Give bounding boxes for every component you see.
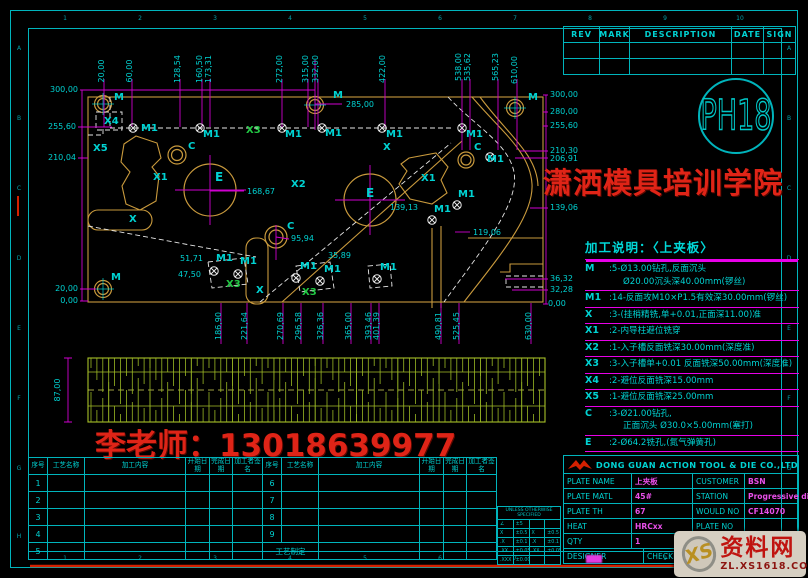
note-line: :5-Ø13.00钻孔,反面沉头 (609, 263, 799, 276)
process-empty-cell (466, 474, 497, 492)
feature-label: X (129, 214, 137, 225)
tolerance-cell: ±0.05 (514, 547, 530, 555)
dim-label: 139,13 (390, 203, 418, 212)
dim-label: 139,06 (550, 203, 578, 212)
feature-label: X1 (421, 173, 436, 184)
dim-label: 565,23 (491, 53, 500, 81)
feature-label: X3 (246, 125, 261, 136)
process-empty-cell (47, 525, 85, 543)
note-line: :1-入子槽反面铣深30.00mm(深度准) (609, 342, 799, 355)
feature-label: X (256, 285, 264, 296)
zone-letter: A (17, 45, 22, 52)
process-empty-cell (185, 474, 210, 492)
process-empty-cell (443, 525, 467, 543)
zone-number: 8 (588, 15, 592, 22)
title-block-header: DONG GUAN ACTION TOOL & DIE CO.,LTD (564, 456, 798, 474)
tolerance-cell: X (530, 529, 546, 537)
process-header-cell: 开始日期 (419, 457, 444, 475)
m-hole-cross (504, 97, 526, 119)
rev-empty-cell (731, 42, 764, 59)
designer-signature (586, 555, 602, 563)
tolerance-row: .XX±0.05.XX±0.05 (498, 547, 560, 556)
note-line: :2-内导柱避位铣穿 (609, 325, 799, 338)
note-item: X1:2-内导柱避位铣穿 (585, 324, 799, 341)
tolerance-cell: ±0.005 (514, 556, 530, 564)
process-row-number: 4 (28, 525, 48, 543)
process-empty-cell (443, 491, 467, 509)
dim-label: 87,00 (53, 379, 62, 402)
dim-label: 296,58 (294, 312, 303, 340)
process-header-cell: 加工者签名 (466, 457, 497, 475)
title-block-cell: Progressive die (745, 489, 808, 503)
process-empty-cell (84, 542, 186, 560)
dim-label: 168,67 (247, 187, 275, 196)
dim-label: 95,94 (291, 234, 314, 243)
process-row-number: 6 (262, 474, 282, 492)
process-empty-cell (185, 491, 210, 509)
tolerance-cell: .XX (498, 547, 514, 555)
c-hole-inner (461, 155, 471, 165)
m1-marker-cross (317, 278, 323, 284)
dim-label: 35,89 (328, 251, 351, 260)
tolerance-cell: ±0.1 (514, 538, 530, 546)
note-item: X:3-(挂梢精铣,单+0.01,正面深11.00)准 (585, 308, 799, 325)
machining-notes: 加工说明：〈上夹板〉 M:5-Ø13.00钻孔,反面沉头Ø20.00沉头深40.… (585, 237, 799, 452)
ph18-logo-text: PH18 (701, 92, 772, 140)
process-empty-cell (232, 508, 263, 526)
process-row-number: 9 (262, 525, 282, 543)
feature-label: M1 (203, 129, 220, 140)
feature-label: X3 (302, 287, 317, 298)
note-line: :2-避位反面铣深15.00mm (609, 375, 799, 388)
process-empty-cell (47, 542, 85, 560)
site-name: 资料网 (720, 537, 808, 560)
zone-number: 7 (513, 15, 517, 22)
dim-label: 0,00 (60, 296, 78, 305)
zone-number: 3 (213, 15, 217, 22)
rev-empty-cell (599, 42, 630, 59)
c-hole (168, 146, 186, 164)
title-block-cell: STATION (693, 489, 745, 503)
dim-label: 332,00 (311, 55, 320, 83)
process-empty-cell (47, 474, 85, 492)
rev-header-cell: REV (563, 26, 600, 43)
dim-label: 51,71 (180, 254, 203, 263)
feature-label: M (333, 90, 343, 101)
dim-label: 173,31 (204, 55, 213, 83)
rev-table: REVMARKDESCRIPTIONDATESIGN (564, 27, 796, 75)
feature-label: X1 (153, 172, 168, 183)
process-empty-cell (419, 491, 444, 509)
note-key: X1 (585, 325, 609, 338)
title-block-cell: QTY (564, 534, 632, 548)
feature-label: X4 (104, 116, 119, 127)
process-empty-cell (185, 542, 210, 560)
title-block-cell: WOULD NO (693, 504, 745, 518)
process-empty-cell (232, 525, 263, 543)
feature-label: M1 (300, 261, 317, 272)
rev-empty-cell (599, 58, 630, 75)
feature-label: M (111, 272, 121, 283)
title-block-row: PLATE TH67WOULD NOCF14070 (564, 504, 798, 519)
title-block-cell: DESIGNER (564, 549, 644, 563)
tolerance-cell: ±0.1 (545, 538, 560, 546)
company-logo-icon (567, 459, 593, 471)
feature-label: M1 (458, 189, 475, 200)
dim-label: 300,00 (550, 90, 578, 99)
tolerance-box: UNLESS OTHERWISE SPECIFIED ∠±5X±0.5X±0.5… (497, 506, 561, 565)
tolerance-cell (545, 520, 560, 528)
title-block-cell: PLATE MATL (564, 489, 632, 503)
process-empty-cell (47, 491, 85, 509)
dim-label: 221,64 (240, 312, 249, 340)
process-empty-cell (185, 525, 210, 543)
process-row-number: 3 (28, 508, 48, 526)
tolerance-cell: .XX (530, 547, 546, 555)
title-block-cell: BSN (745, 474, 808, 488)
process-empty-cell (232, 542, 263, 560)
tolerance-cell: ±5 (514, 520, 530, 528)
dim-label: 0,00 (548, 299, 566, 308)
process-footer: 工艺制定 (262, 542, 319, 560)
tolerance-cell: ±0.5 (514, 529, 530, 537)
rev-empty-cell (563, 42, 600, 59)
feature-label: M1 (285, 129, 302, 140)
note-key: X2 (585, 342, 609, 355)
zone-number: 4 (288, 15, 292, 22)
process-empty-cell (281, 508, 319, 526)
note-key: X (585, 309, 609, 322)
tolerance-cell: ∠ (498, 520, 514, 528)
note-item: M1:14-反面攻M10×P1.5有效深30.00mm(锣丝) (585, 291, 799, 308)
title-block-cell: 67 (632, 504, 693, 518)
rev-empty-cell (763, 58, 796, 75)
process-empty-cell (185, 508, 210, 526)
process-empty-cell (281, 474, 319, 492)
tolerance-cell (530, 520, 546, 528)
process-empty-cell (466, 491, 497, 509)
process-header-cell: 加工内容 (84, 457, 186, 475)
title-block-cell: CUSTOMER (693, 474, 745, 488)
zone-number: 6 (438, 15, 442, 22)
note-key: X4 (585, 375, 609, 388)
process-header-cell: 序号 (28, 457, 48, 475)
tolerance-cell (545, 556, 560, 564)
feature-label: M1 (325, 128, 342, 139)
note-key: C (585, 408, 609, 433)
feature-label: M (114, 92, 124, 103)
process-empty-cell (466, 525, 497, 543)
rev-empty-cell (629, 42, 732, 59)
title-block-cell: PLATE NAME (564, 474, 632, 488)
zone-letter: E (17, 325, 21, 332)
dim-label: 365,00 (344, 312, 353, 340)
process-row-number: 5 (28, 542, 48, 560)
process-header-cell: 工艺名称 (47, 457, 85, 475)
section-outline (88, 358, 545, 422)
dim-label: 525,45 (452, 312, 461, 340)
process-empty-cell (281, 491, 319, 509)
notes-body: M:5-Ø13.00钻孔,反面沉头Ø20.00沉头深40.00mm(锣丝)M1:… (585, 262, 799, 452)
tolerance-row: X±0.5X±0.5 (498, 529, 560, 538)
zone-number: 1 (63, 15, 67, 22)
title-block-cell: 45# (632, 489, 693, 503)
dim-label: 272,00 (275, 55, 284, 83)
note-line: :3-入子槽单+0.01 反面铣深50.00mm(深度准) (609, 358, 799, 371)
dim-label: 285,00 (346, 100, 374, 109)
feature-label: M1 (216, 253, 233, 264)
feature-label: M1 (380, 262, 397, 273)
note-line: Ø20.00沉头深40.00mm(锣丝) (609, 276, 799, 289)
title-block-row: PLATE MATL45#STATIONProgressive die (564, 489, 798, 504)
note-item: X4:2-避位反面铣深15.00mm (585, 374, 799, 391)
process-empty-cell (84, 525, 186, 543)
dim-label: 315,00 (301, 55, 310, 83)
process-empty-cell (318, 525, 420, 543)
tolerance-cell: .XXX (498, 556, 514, 564)
note-key: M1 (585, 292, 609, 305)
tolerance-cell: X (498, 529, 514, 537)
feature-label: M1 (141, 123, 158, 134)
process-empty-cell (84, 491, 186, 509)
process-header-cell: 开始日期 (185, 457, 210, 475)
site-url: ZL.XS1618.COM (720, 562, 808, 572)
zone-letter: B (17, 115, 21, 122)
m1-marker-cross (374, 276, 380, 282)
feature-label: X2 (291, 179, 306, 190)
rev-empty-cell (629, 58, 732, 75)
dim-label: 36,32 (550, 274, 573, 283)
dim-label: 20,00 (97, 60, 106, 83)
process-empty-cell (318, 491, 420, 509)
feature-label: E (215, 170, 223, 184)
school-watermark: 潇洒模具培训学院 (543, 160, 783, 202)
dim-label: 255,60 (48, 122, 76, 131)
note-item: X3:3-入子槽单+0.01 反面铣深50.00mm(深度准) (585, 357, 799, 374)
tolerance-title: UNLESS OTHERWISE SPECIFIED (498, 507, 560, 520)
process-empty-cell (209, 508, 233, 526)
dim-label: 255,60 (550, 121, 578, 130)
rev-header-cell: MARK (599, 26, 630, 43)
m1-marker-cross (235, 271, 241, 277)
m-hole-cross (92, 93, 114, 115)
tolerance-cell: ±0.05 (545, 547, 560, 555)
zone-letter: C (17, 185, 21, 192)
process-row-number: 7 (262, 491, 282, 509)
rev-empty-cell (731, 58, 764, 75)
note-line: :2-Ø64.2铣孔,(氮气弹簧孔) (609, 437, 799, 450)
zone-letter: C (787, 185, 791, 192)
dim-label: 401,39 (372, 312, 381, 340)
feature-label: X3 (226, 279, 241, 290)
tolerance-row: ∠±5 (498, 520, 560, 529)
zone-letter: G (17, 465, 22, 472)
process-header-cell: 完成日期 (209, 457, 233, 475)
process-empty-cell (466, 542, 497, 560)
process-empty-cell (281, 525, 319, 543)
note-key: M (585, 263, 609, 288)
xs-logo-icon: XS (677, 532, 721, 577)
dim-label: 490,81 (434, 312, 443, 340)
c-hole (458, 152, 474, 168)
note-line: :1-避位反面铣深25.00mm (609, 391, 799, 404)
process-empty-cell (318, 508, 420, 526)
dim-label: 186,90 (214, 312, 223, 340)
process-empty-cell (232, 491, 263, 509)
note-item: X5:1-避位反面铣深25.00mm (585, 390, 799, 407)
process-empty-cell (84, 474, 186, 492)
feature-label: C (474, 142, 481, 153)
process-table-2: 序号工艺名称加工内容开始日期完成日期加工者签名6789工艺制定 (263, 458, 497, 560)
dim-label: 20,00 (55, 284, 78, 293)
xs-logo-text: XS (682, 539, 716, 569)
zone-letter: H (17, 533, 22, 540)
process-empty-cell (209, 474, 233, 492)
dim-label: 47,50 (178, 270, 201, 279)
note-line: :3-Ø21.00钻孔, (609, 408, 799, 421)
dim-label: 300,00 (50, 85, 78, 94)
cad-sheet: 20,0060,00128,54160,50173,31272,00315,00… (0, 0, 808, 578)
tolerance-cell: ±0.5 (545, 529, 560, 537)
dim-label: 128,54 (173, 55, 182, 83)
process-empty-cell (443, 474, 467, 492)
section-view (88, 358, 545, 422)
process-header-cell: 加工者签名 (232, 457, 263, 475)
process-empty-cell (419, 474, 444, 492)
process-empty-cell (419, 525, 444, 543)
dim-label: 630,00 (524, 312, 533, 340)
feature-label: X (383, 142, 391, 153)
feature-label: E (366, 186, 374, 200)
dim-label: 160,50 (195, 55, 204, 83)
c-hole-inner (172, 150, 183, 161)
section-lines (88, 372, 545, 406)
dim-label: 32,28 (550, 285, 573, 294)
process-empty-cell (47, 508, 85, 526)
process-header-cell: 工艺名称 (281, 457, 319, 475)
zone-number: 9 (663, 15, 667, 22)
process-header-cell: 序号 (262, 457, 282, 475)
feature-label: M1 (386, 129, 403, 140)
note-line: :14-反面攻M10×P1.5有效深30.00mm(锣丝) (609, 292, 799, 305)
feature-label: M1 (240, 256, 257, 267)
m1-marker-cross (454, 202, 460, 208)
process-empty-cell (419, 542, 444, 560)
tolerance-row: .XXX±0.005 (498, 556, 560, 564)
process-empty-cell (466, 508, 497, 526)
note-key: X5 (585, 391, 609, 404)
rev-empty-cell (563, 58, 600, 75)
note-item: C:3-Ø21.00钻孔,正面沉头 Ø30.0×5.00mm(塞打) (585, 407, 799, 436)
dim-label: 60,00 (125, 60, 134, 83)
feature-label: X5 (93, 143, 108, 154)
note-line: 正面沉头 Ø30.0×5.00mm(塞打) (609, 420, 799, 433)
dim-label: 210,04 (48, 153, 76, 162)
zone-letter: D (17, 255, 22, 262)
dim-label: 326,36 (316, 312, 325, 340)
dim-label: 538,00 (454, 53, 463, 81)
process-row-number: 8 (262, 508, 282, 526)
title-block-cell: 上夹板 (632, 474, 693, 488)
process-empty-cell (84, 508, 186, 526)
note-item: X2:1-入子槽反面铣深30.00mm(深度准) (585, 341, 799, 358)
rev-header-cell: SIGN (763, 26, 796, 43)
feature-label: M1 (466, 129, 483, 140)
rev-empty-cell (763, 42, 796, 59)
tolerance-cell: .X (530, 538, 546, 546)
tolerance-cell (530, 556, 546, 564)
feature-label: M (528, 92, 538, 103)
process-empty-cell (419, 508, 444, 526)
process-row-number: 1 (28, 474, 48, 492)
m1-marker-cross (429, 217, 435, 223)
feature-label: M1 (487, 154, 504, 165)
process-empty-cell (209, 542, 233, 560)
notes-title: 加工说明：〈上夹板〉 (585, 237, 799, 260)
process-empty-cell (443, 508, 467, 526)
process-header-cell: 加工内容 (318, 457, 420, 475)
dim-label: 119,06 (473, 228, 501, 237)
zone-letter: F (17, 395, 21, 402)
tolerance-rows: ∠±5X±0.5X±0.5.X±0.1.X±0.1.XX±0.05.XX±0.0… (498, 520, 560, 564)
note-line: :3-(挂梢精铣,单+0.01,正面深11.00)准 (609, 309, 799, 322)
feature-label: M1 (324, 264, 341, 275)
process-empty-cell (232, 474, 263, 492)
feature-label: M1 (434, 204, 451, 215)
dim-label: 535,62 (463, 53, 472, 81)
dim-label: 422,00 (378, 55, 387, 83)
process-row-number: 2 (28, 491, 48, 509)
tolerance-row: .X±0.1.X±0.1 (498, 538, 560, 547)
dim-label: 610,00 (510, 56, 519, 84)
dim-label: 280,00 (550, 107, 578, 116)
title-block-row: PLATE NAME上夹板CUSTOMERBSN (564, 474, 798, 489)
process-empty-cell (209, 525, 233, 543)
zone-number: 2 (138, 15, 142, 22)
rev-header-cell: DATE (731, 26, 764, 43)
note-item: E:2-Ø64.2铣孔,(氮气弹簧孔) (585, 436, 799, 453)
feature-label: C (188, 141, 195, 152)
process-empty-cell (443, 542, 467, 560)
tolerance-cell: .X (498, 538, 514, 546)
m1-marker-cross (211, 268, 217, 274)
title-block-cell: HEAT (564, 519, 632, 533)
title-block-cell: CF14070 (745, 504, 808, 518)
process-empty-cell (318, 474, 420, 492)
feature-label: C (287, 221, 294, 232)
note-key: E (585, 437, 609, 450)
process-empty-cell (209, 491, 233, 509)
note-item: M:5-Ø13.00钻孔,反面沉头Ø20.00沉头深40.00mm(锣丝) (585, 262, 799, 291)
title-block-cell: PLATE TH (564, 504, 632, 518)
ph18-logo: PH18 (698, 78, 774, 154)
process-header-cell: 完成日期 (443, 457, 467, 475)
zone-letter: B (787, 115, 791, 122)
rev-header-cell: DESCRIPTION (629, 26, 732, 43)
company-name: DONG GUAN ACTION TOOL & DIE CO.,LTD (596, 460, 798, 470)
zone-number: 10 (736, 15, 744, 22)
site-watermark: XS 资料网 ZL.XS1618.COM (674, 531, 806, 577)
zone-number: 5 (363, 15, 367, 22)
process-table-1: 序号工艺名称加工内容开始日期完成日期加工者签名12345 (29, 458, 263, 560)
dim-label: 270,69 (276, 312, 285, 340)
process-empty-cell (318, 542, 420, 560)
note-key: X3 (585, 358, 609, 371)
